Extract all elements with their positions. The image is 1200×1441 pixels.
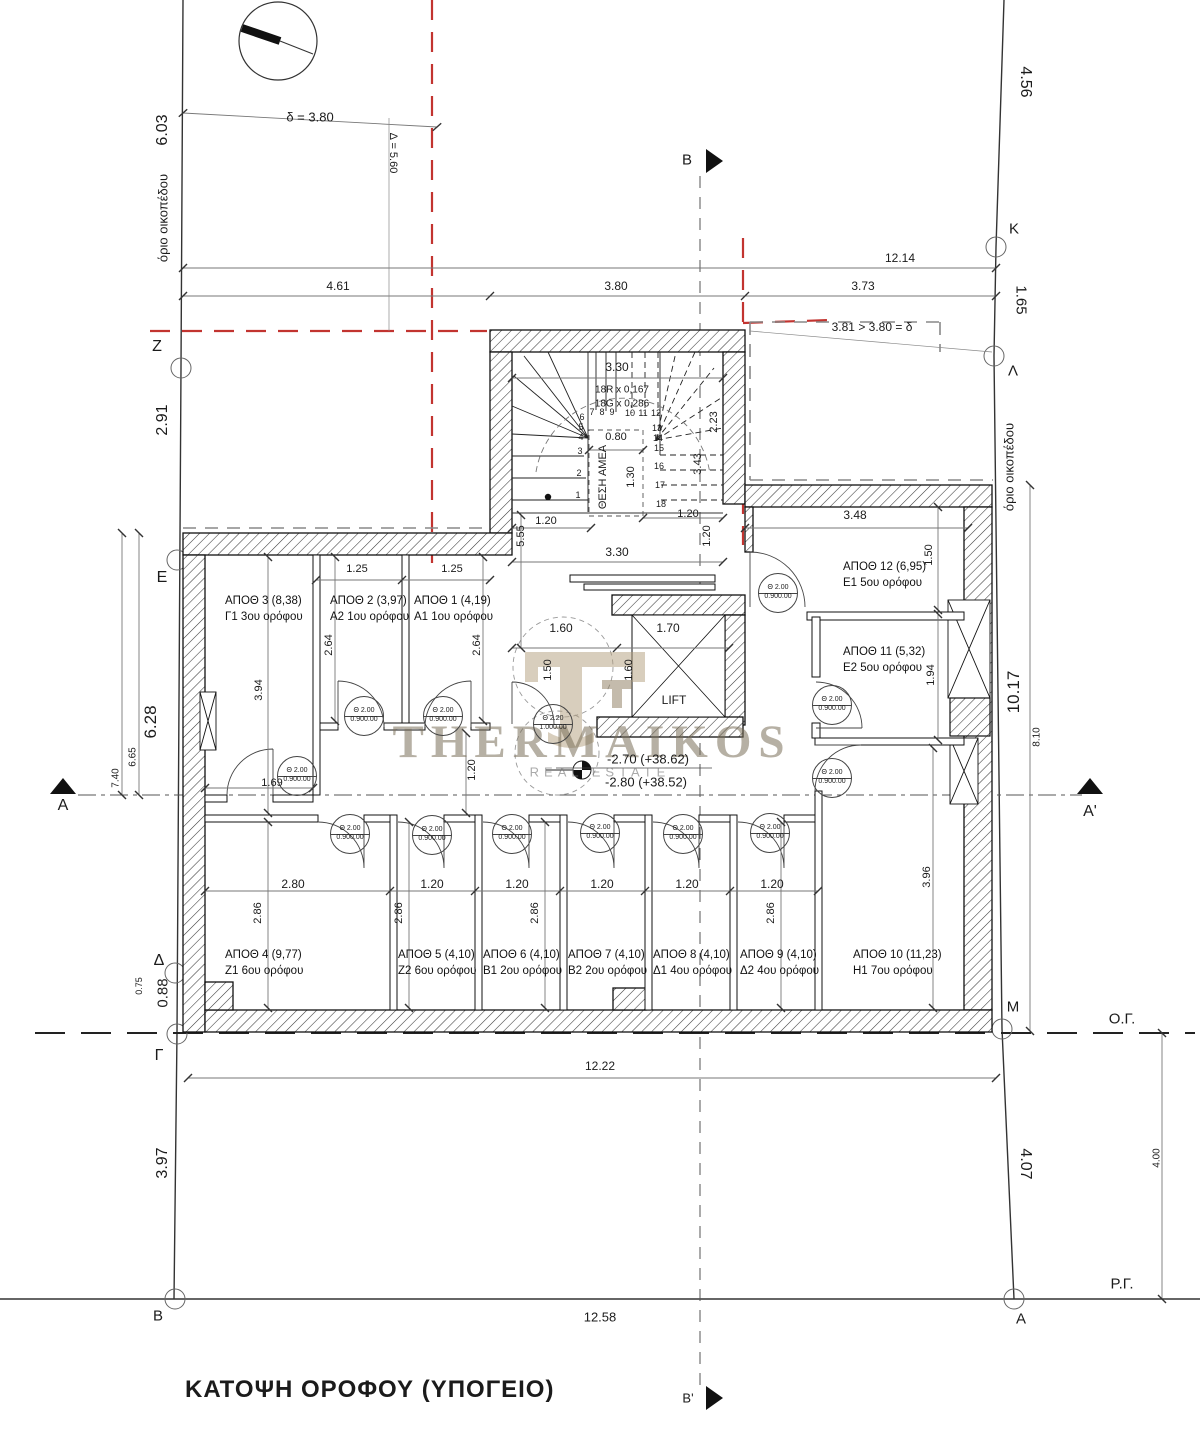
dim-1-25-b: 1.25 bbox=[441, 563, 462, 575]
door-height-label: Θ 2.00 bbox=[672, 825, 693, 834]
dim-2-86-d: 2.86 bbox=[765, 902, 777, 923]
door-annotation-marker: Θ 2.000.900.00 bbox=[277, 756, 317, 796]
stair-step-number: 9 bbox=[609, 407, 614, 417]
door-width-label: 0.900.00 bbox=[283, 776, 310, 785]
room-label: ΑΠΟΘ 12 (6,95)Ε1 5ου ορόφου bbox=[843, 560, 926, 591]
door-annotation-marker: Θ 2.000.900.00 bbox=[412, 815, 452, 855]
room-area-label: ΑΠΟΘ 4 (9,77) bbox=[225, 948, 303, 964]
door-height-label: Θ 2.00 bbox=[421, 826, 442, 835]
dim-left-6-65: 6.65 bbox=[128, 747, 139, 766]
dim-1-20-z2: 1.20 bbox=[420, 877, 443, 891]
door-annotation-marker: Θ 2.000.900.00 bbox=[423, 696, 463, 736]
dim-left-6-03: 6.03 bbox=[154, 114, 172, 145]
section-a-prime-label: Α' bbox=[1083, 803, 1097, 821]
door-annotation-marker: Θ 2.000.900.00 bbox=[758, 573, 798, 613]
door-width-label: 0.900.00 bbox=[756, 833, 783, 842]
door-annotation-marker: Θ 2.000.900.00 bbox=[812, 685, 852, 725]
label-thesi-amea: ΘΕΣΗ ΑΜΕΑ bbox=[597, 445, 609, 509]
dim-right-4-07: 4.07 bbox=[1016, 1148, 1034, 1179]
dim-top-4-61: 4.61 bbox=[326, 279, 349, 293]
door-height-label: Θ 2.00 bbox=[432, 707, 453, 716]
dim-1-20-d2: 1.20 bbox=[760, 877, 783, 891]
dim-lobby-1-60: 1.60 bbox=[549, 621, 572, 635]
dim-3-94: 3.94 bbox=[253, 679, 265, 700]
dim-left-6-28: 6.28 bbox=[141, 705, 161, 738]
dim-2-80: 2.80 bbox=[281, 877, 304, 891]
room-label: ΑΠΟΘ 5 (4,10)Ζ2 6ου ορόφου bbox=[398, 948, 476, 979]
room-label: ΑΠΟΘ 3 (8,38)Γ1 3ου ορόφου bbox=[225, 594, 303, 625]
dim-stair-1-20-b: 1.20 bbox=[677, 508, 698, 520]
dim-left-2-91: 2.91 bbox=[154, 404, 172, 435]
stair-step-number: 5 bbox=[578, 422, 583, 432]
room-floor-label: Δ2 4ου ορόφου bbox=[740, 964, 819, 980]
dim-left-3-97: 3.97 bbox=[154, 1147, 172, 1178]
dim-left-7-40: 7.40 bbox=[111, 768, 122, 787]
door-height-label: Θ 2.00 bbox=[821, 696, 842, 705]
door-width-label: 0.900.00 bbox=[818, 705, 845, 714]
note-3-81: 3.81 > 3.80 = δ bbox=[832, 320, 913, 334]
dim-stair-1-30: 1.30 bbox=[625, 466, 637, 487]
door-height-label: Θ 2.00 bbox=[767, 584, 788, 593]
room-area-label: ΑΠΟΘ 2 (3,97) bbox=[330, 594, 409, 610]
room-label: ΑΠΟΘ 7 (4,10)Β2 2ου ορόφου bbox=[568, 948, 647, 979]
room-area-label: ΑΠΟΘ 11 (5,32) bbox=[843, 645, 925, 661]
dim-stair-3-30-bottom: 3.30 bbox=[605, 545, 628, 559]
room-area-label: ΑΠΟΘ 3 (8,38) bbox=[225, 594, 303, 610]
room-label: ΑΠΟΘ 1 (4,19)Α1 1ου ορόφου bbox=[414, 594, 493, 625]
dim-stair-2-23: 2.23 bbox=[708, 411, 720, 432]
dim-delta-5-60: Δ = 5.60 bbox=[387, 133, 399, 174]
room-floor-label: Ζ1 6ου ορόφου bbox=[225, 964, 303, 980]
room-floor-label: Δ1 4ου ορόφου bbox=[653, 964, 732, 980]
marker-g: Γ bbox=[155, 1047, 164, 1065]
dim-top-3-80: 3.80 bbox=[604, 279, 627, 293]
door-annotation-marker: Θ 2.000.900.00 bbox=[580, 813, 620, 853]
room-area-label: ΑΠΟΘ 5 (4,10) bbox=[398, 948, 476, 964]
dim-right-10-17: 10.17 bbox=[1004, 671, 1024, 714]
stair-step-number: 15 bbox=[654, 443, 664, 453]
label-lift: LIFT bbox=[662, 693, 687, 707]
door-width-label: 0.900.00 bbox=[498, 834, 525, 843]
dim-2-64-b: 2.64 bbox=[471, 634, 483, 655]
room-area-label: ΑΠΟΘ 8 (4,10) bbox=[653, 948, 732, 964]
room-floor-label: Α1 1ου ορόφου bbox=[414, 610, 493, 626]
dim-lobby-1-60-v: 1.60 bbox=[623, 659, 635, 680]
dim-lobby-1-50: 1.50 bbox=[542, 659, 554, 680]
note-stair-risers: 18R x 0,167 bbox=[595, 385, 649, 396]
dim-right-1-65: 1.65 bbox=[1013, 285, 1030, 314]
label-rg: Ρ.Γ. bbox=[1110, 1276, 1133, 1293]
marker-l: Λ bbox=[1008, 363, 1018, 380]
door-width-label: 0.900.00 bbox=[336, 834, 363, 843]
dim-3-96: 3.96 bbox=[921, 866, 933, 887]
dim-12-22: 12.22 bbox=[585, 1059, 615, 1073]
room-floor-label: Β2 2ου ορόφου bbox=[568, 964, 647, 980]
dim-left-0-75: 0.75 bbox=[134, 977, 144, 995]
room-area-label: ΑΠΟΘ 6 (4,10) bbox=[483, 948, 562, 964]
room-label: ΑΠΟΘ 6 (4,10)Β1 2ου ορόφου bbox=[483, 948, 562, 979]
dim-stair-5-55: 5.55 bbox=[515, 525, 527, 546]
room-label: ΑΠΟΘ 8 (4,10)Δ1 4ου ορόφου bbox=[653, 948, 732, 979]
dim-top-12-14: 12.14 bbox=[885, 251, 915, 265]
dim-stair-1-20-c: 1.20 bbox=[701, 525, 713, 546]
marker-a-bottom: Α bbox=[1016, 1311, 1026, 1328]
room-label: ΑΠΟΘ 4 (9,77)Ζ1 6ου ορόφου bbox=[225, 948, 303, 979]
door-width-label: 1.000.00 bbox=[539, 724, 566, 733]
drawing-title: ΚΑΤΟΨΗ ΟΡΟΦΟΥ (ΥΠΟΓΕΙΟ) bbox=[185, 1376, 554, 1404]
dim-1-25-a: 1.25 bbox=[346, 563, 367, 575]
stair-step-number: 7 bbox=[589, 407, 594, 417]
dim-stair-1-20-a: 1.20 bbox=[535, 515, 556, 527]
room-floor-label: Γ1 3ου ορόφου bbox=[225, 610, 303, 626]
dim-3-48: 3.48 bbox=[843, 508, 866, 522]
room-area-label: ΑΠΟΘ 1 (4,19) bbox=[414, 594, 493, 610]
dim-1-20-d1: 1.20 bbox=[675, 877, 698, 891]
stair-step-number: 1 bbox=[575, 490, 580, 500]
marker-b-bottom: Β bbox=[153, 1308, 163, 1325]
door-height-label: Θ 2.00 bbox=[286, 767, 307, 776]
stair-step-number: 14 bbox=[653, 433, 663, 443]
door-width-label: 0.900.00 bbox=[429, 716, 456, 725]
marker-e: Ε bbox=[157, 569, 168, 587]
stair-step-number: 10 bbox=[625, 408, 635, 418]
section-a-label: Α bbox=[58, 797, 69, 815]
level-upper: -2.70 (+38.62) bbox=[607, 752, 689, 767]
room-floor-label: Ε2 5ου ορόφου bbox=[843, 661, 925, 677]
room-label: ΑΠΟΘ 10 (11,23)Η1 7ου ορόφου bbox=[853, 948, 942, 979]
door-height-label: Θ 2.00 bbox=[501, 825, 522, 834]
dim-delta-3-80: δ = 3.80 bbox=[286, 110, 333, 125]
room-label: ΑΠΟΘ 11 (5,32)Ε2 5ου ορόφου bbox=[843, 645, 925, 676]
room-floor-label: Α2 1ου ορόφου bbox=[330, 610, 409, 626]
room-label: ΑΠΟΘ 2 (3,97)Α2 1ου ορόφου bbox=[330, 594, 409, 625]
section-b-label: Β bbox=[682, 152, 692, 169]
dim-stair-3-43: 3.43 bbox=[692, 453, 704, 474]
door-annotation-marker: Θ 2.000.900.00 bbox=[344, 696, 384, 736]
door-annotation-marker: Θ 2.000.900.00 bbox=[330, 814, 370, 854]
door-height-label: Θ 2.00 bbox=[821, 769, 842, 778]
marker-k: Κ bbox=[1009, 221, 1019, 238]
dim-2-86-a: 2.86 bbox=[252, 902, 264, 923]
room-floor-label: Ε1 5ου ορόφου bbox=[843, 576, 926, 592]
door-annotation-marker: Θ 2.000.900.00 bbox=[492, 814, 532, 854]
marker-m: Μ bbox=[1007, 999, 1020, 1016]
dim-corridor-1-20: 1.20 bbox=[466, 759, 478, 780]
room-area-label: ΑΠΟΘ 9 (4,10) bbox=[740, 948, 819, 964]
door-width-label: 0.900.00 bbox=[418, 835, 445, 844]
door-width-label: 0.900.00 bbox=[764, 593, 791, 602]
room-floor-label: Ζ2 6ου ορόφου bbox=[398, 964, 476, 980]
stair-step-number: 18 bbox=[656, 499, 666, 509]
dim-left-0-88: 0.88 bbox=[155, 978, 172, 1007]
text-layer: THERMAIKOS REAL ESTATE ΚΑΤΟΨΗ ΟΡΟΦΟΥ (ΥΠ… bbox=[0, 0, 1200, 1441]
section-b-prime-label: Β' bbox=[682, 1391, 693, 1406]
floor-plan-sheet: THERMAIKOS REAL ESTATE ΚΑΤΟΨΗ ΟΡΟΦΟΥ (ΥΠ… bbox=[0, 0, 1200, 1441]
dim-1-20-b1: 1.20 bbox=[505, 877, 528, 891]
door-height-label: Θ 2.00 bbox=[339, 825, 360, 834]
door-height-label: Θ 2.00 bbox=[759, 824, 780, 833]
door-annotation-marker: Θ 2.201.000.00 bbox=[533, 704, 573, 744]
room-area-label: ΑΠΟΘ 10 (11,23) bbox=[853, 948, 942, 964]
stair-step-number: 16 bbox=[654, 461, 664, 471]
door-width-label: 0.900.00 bbox=[818, 778, 845, 787]
marker-z: Ζ bbox=[152, 338, 162, 356]
room-label: ΑΠΟΘ 9 (4,10)Δ2 4ου ορόφου bbox=[740, 948, 819, 979]
dim-12-58: 12.58 bbox=[584, 1310, 617, 1325]
door-height-label: Θ 2.00 bbox=[589, 824, 610, 833]
room-area-label: ΑΠΟΘ 7 (4,10) bbox=[568, 948, 647, 964]
dim-lift-1-70: 1.70 bbox=[656, 621, 679, 635]
door-height-label: Θ 2.00 bbox=[353, 707, 374, 716]
dim-1-20-b2: 1.20 bbox=[590, 877, 613, 891]
dim-right-4-00: 4.00 bbox=[1152, 1148, 1163, 1167]
dim-stair-0-80: 0.80 bbox=[605, 431, 626, 443]
dim-2-86-c: 2.86 bbox=[529, 902, 541, 923]
stair-step-number: 3 bbox=[577, 446, 582, 456]
stair-step-number: 2 bbox=[576, 468, 581, 478]
door-annotation-marker: Θ 2.000.900.00 bbox=[750, 813, 790, 853]
dim-right-8-10: 8.10 bbox=[1032, 727, 1043, 746]
stair-step-number: 11 bbox=[638, 408, 647, 418]
stair-step-number: 17 bbox=[655, 480, 665, 490]
level-lower: -2.80 (+38.52) bbox=[605, 775, 687, 790]
dim-right-4-56: 4.56 bbox=[1016, 66, 1034, 97]
dim-2-64-a: 2.64 bbox=[323, 634, 335, 655]
door-width-label: 0.900.00 bbox=[669, 834, 696, 843]
marker-d: Δ bbox=[154, 952, 165, 970]
stair-step-number: 8 bbox=[599, 407, 604, 417]
stair-step-number: 12 bbox=[651, 408, 661, 418]
dim-top-3-73: 3.73 bbox=[851, 279, 874, 293]
door-width-label: 0.900.00 bbox=[350, 716, 377, 725]
dim-2-86-b: 2.86 bbox=[393, 902, 405, 923]
door-height-label: Θ 2.20 bbox=[542, 715, 563, 724]
door-width-label: 0.900.00 bbox=[586, 833, 613, 842]
door-annotation-marker: Θ 2.000.900.00 bbox=[663, 814, 703, 854]
label-orio-oikopedou-left: όριο οικοπέδου bbox=[156, 174, 171, 262]
stair-step-number: 13 bbox=[652, 423, 662, 433]
stair-step-number: 4 bbox=[578, 432, 583, 442]
room-floor-label: Β1 2ου ορόφου bbox=[483, 964, 562, 980]
room-area-label: ΑΠΟΘ 12 (6,95) bbox=[843, 560, 926, 576]
stair-step-number: 6 bbox=[579, 412, 584, 422]
dim-stair-3-30-top: 3.30 bbox=[605, 360, 628, 374]
room-floor-label: Η1 7ου ορόφου bbox=[853, 964, 942, 980]
label-orio-oikopedou-right: όριο οικοπέδου bbox=[1002, 423, 1017, 511]
dim-1-94: 1.94 bbox=[925, 664, 937, 685]
door-annotation-marker: Θ 2.000.900.00 bbox=[812, 758, 852, 798]
label-og: Ο.Γ. bbox=[1109, 1011, 1136, 1028]
